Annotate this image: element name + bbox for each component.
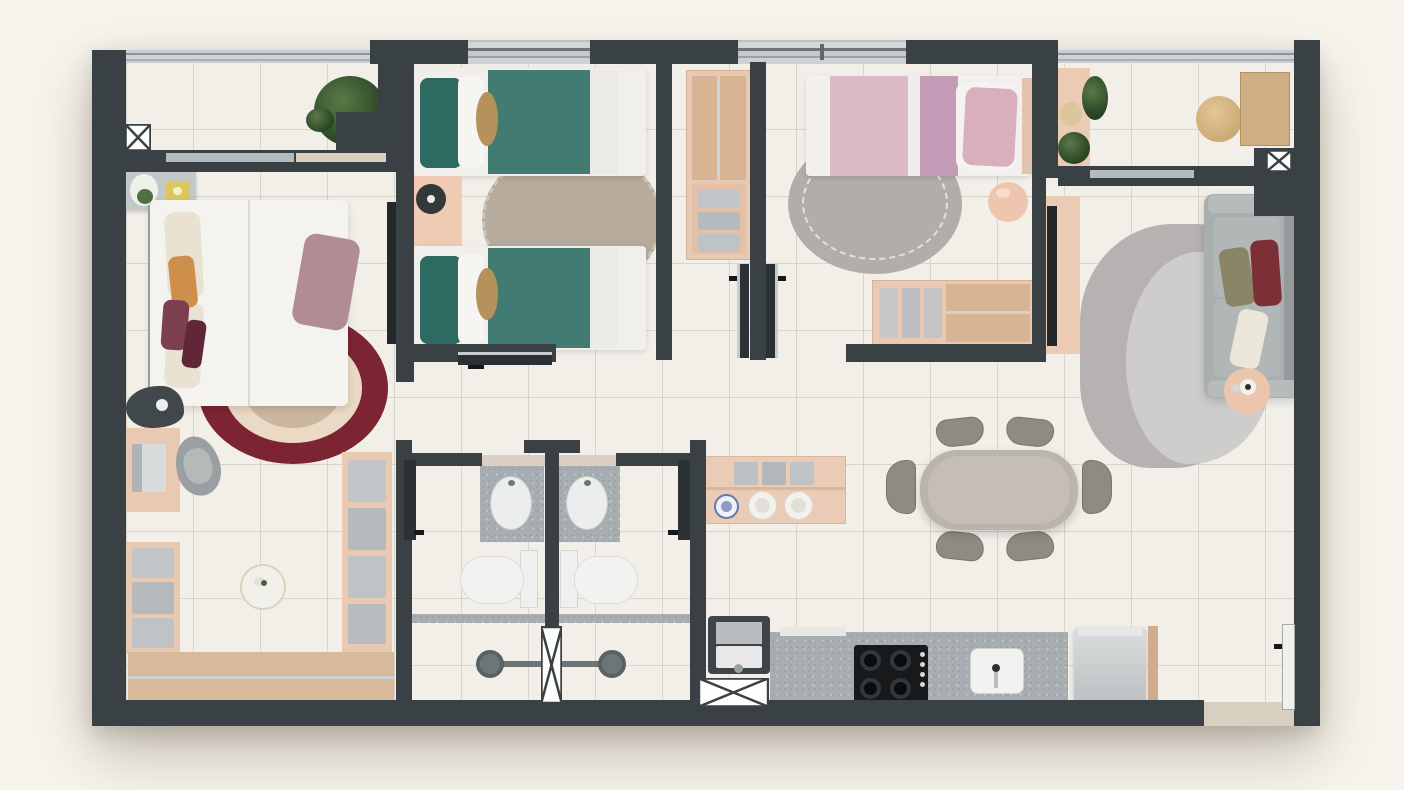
toilet-left	[460, 556, 524, 604]
dining-chair-6	[1082, 460, 1112, 514]
shaft-entry	[1266, 150, 1292, 172]
shower-head-right	[598, 650, 626, 678]
folded-clothes-7	[348, 604, 386, 644]
closet-hanging-rail	[128, 652, 394, 706]
sofa-pillow-wine	[1250, 239, 1283, 307]
plate-blue-center	[721, 501, 732, 512]
shower-arm-left	[502, 661, 545, 667]
kitchen-faucet	[994, 672, 998, 688]
burner-3	[860, 678, 881, 699]
bath-left-door	[404, 460, 416, 540]
toilet-right	[574, 556, 638, 604]
pink-blanket-dark	[920, 76, 958, 176]
twin-bed-1-blanket	[488, 70, 590, 174]
sink-right-faucet	[584, 480, 591, 486]
entry-plant-small	[1058, 132, 1090, 164]
kidney-table-dot	[156, 399, 168, 411]
twin-b1-pillow-teal	[420, 78, 462, 168]
entry-pouf	[1196, 96, 1242, 142]
entry-door	[1282, 624, 1295, 710]
shower-head-left	[476, 650, 504, 678]
shaft-kitchen	[698, 678, 769, 707]
wall-bath-tee	[524, 440, 580, 453]
cooktop-knob-4	[920, 682, 925, 687]
wall-master-stub	[396, 362, 414, 382]
folded-clothes-3	[132, 618, 174, 648]
master-tv	[387, 202, 396, 344]
shower-arm-right	[557, 661, 600, 667]
wall-balcony-pillar	[336, 112, 380, 152]
window-twin-room	[468, 40, 590, 64]
burner-1	[860, 650, 881, 671]
hall-stack-1	[698, 190, 740, 208]
dining-chair-5	[886, 460, 916, 514]
cooktop-knob-2	[920, 662, 925, 667]
desk-laptop-screen	[132, 444, 142, 492]
folded-clothes-6	[348, 556, 386, 598]
dining-table-top	[928, 456, 1070, 524]
balcony1-slider-frame	[296, 153, 386, 162]
living-tv	[1047, 206, 1057, 346]
closet-rail-bar	[128, 676, 394, 679]
dresser-tray-dot	[173, 187, 182, 195]
twin-b1-bolster	[476, 92, 498, 146]
floor-plan-page	[0, 0, 1404, 790]
bath-left-door-handle	[414, 530, 424, 535]
ottoman-plant-dot	[261, 580, 267, 586]
pink-headboard	[1022, 78, 1032, 174]
bowl-2-inner	[791, 498, 806, 513]
burner-2	[890, 650, 911, 671]
entry-plant-tall	[1082, 76, 1108, 120]
pink-door-handle	[778, 276, 786, 281]
shaft-top-left	[125, 124, 151, 151]
fridge	[1074, 628, 1146, 704]
wall-pink-bottom	[846, 344, 1046, 362]
shaft-bathroom	[541, 626, 562, 704]
folded-clothes-1	[132, 548, 174, 578]
folded-clothes-4	[348, 460, 386, 502]
wall-master-twin	[396, 62, 414, 346]
balcony2-slider-glass	[1090, 170, 1194, 178]
cooktop-knob-1	[920, 652, 925, 657]
pink-sheet-strip	[908, 76, 920, 176]
twin-b2-bolster	[476, 268, 498, 320]
folded-clothes-5	[348, 508, 386, 550]
wall-top-1	[370, 40, 468, 64]
pw-stack-2	[902, 288, 920, 338]
pink-ottoman-highlight	[996, 188, 1010, 198]
side-table-cup	[1231, 384, 1240, 393]
master-bed-fold-line	[248, 200, 250, 406]
sideboard-box-1	[734, 462, 758, 485]
wall-pink-living-top	[1032, 62, 1058, 178]
pw-stack-1	[880, 288, 898, 338]
bowl-1-inner	[755, 498, 770, 513]
balcony-railing	[126, 50, 380, 63]
twin-b1-sheet-fold	[590, 70, 618, 174]
burner-4	[890, 678, 911, 699]
wall-bath-top-left	[412, 453, 482, 466]
twin-b2-pillow-teal	[420, 256, 462, 344]
sideboard-box-2	[762, 462, 786, 485]
wall-hallcloset-east	[750, 62, 766, 360]
shower-ledge-left	[412, 614, 545, 623]
rattan-bench	[1240, 72, 1290, 146]
window-mullion	[820, 44, 824, 60]
balcony-plant-tuft	[306, 108, 334, 132]
entry-vase	[1060, 102, 1082, 126]
twin-bed-2-blanket	[488, 248, 590, 348]
twin-door-edge	[458, 352, 552, 355]
sideboard-shelf-line	[704, 487, 846, 490]
hall-closet-rail	[717, 76, 720, 180]
wall-top-2	[590, 40, 738, 64]
closet-ottoman	[240, 564, 286, 610]
floor-plan-canvas	[0, 0, 1404, 790]
twin-lamp-dot	[427, 195, 435, 203]
cabinet-side-panel	[1148, 626, 1158, 706]
sideboard-box-3	[790, 462, 814, 485]
hall-stack-3	[698, 234, 740, 252]
wall-right	[1294, 40, 1320, 726]
hall-closet-door-edge	[737, 264, 740, 358]
bath-right-door-handle	[668, 530, 678, 535]
hall-stack-2	[698, 212, 740, 230]
pw-stack-3	[924, 288, 942, 338]
shower-ledge-right	[559, 614, 690, 623]
pw-rail	[946, 311, 1030, 314]
pink-pillow	[962, 87, 1018, 168]
hall-closet-door-handle	[729, 276, 737, 281]
wall-bottom	[92, 700, 1204, 726]
laundry-faucet	[734, 664, 743, 673]
laundry-washboard	[716, 622, 762, 644]
folded-clothes-2	[132, 582, 174, 614]
entry-door-handle	[1274, 644, 1282, 649]
bath-right-door	[678, 460, 690, 540]
wall-pink-living	[1032, 178, 1046, 362]
kitchen-sink-drain	[992, 664, 1000, 672]
wall-top-3	[906, 40, 1058, 64]
sink-left-faucet	[508, 480, 515, 486]
balcony1-slider-glass	[166, 153, 294, 162]
kidney-side-table	[126, 386, 184, 428]
cooktop-knob-3	[920, 672, 925, 677]
pink-ottoman	[988, 182, 1028, 222]
entry-threshold	[1204, 702, 1294, 726]
side-table-lamp-dot	[1245, 384, 1251, 390]
twin-b2-sheet-fold	[590, 248, 618, 348]
wall-hallcloset-west	[656, 62, 672, 360]
twin-door-handle	[468, 365, 484, 369]
fridge-top	[1078, 628, 1142, 636]
entry-railing	[1058, 50, 1294, 63]
wall-left	[92, 52, 126, 726]
kitchen-ledge	[780, 627, 846, 636]
